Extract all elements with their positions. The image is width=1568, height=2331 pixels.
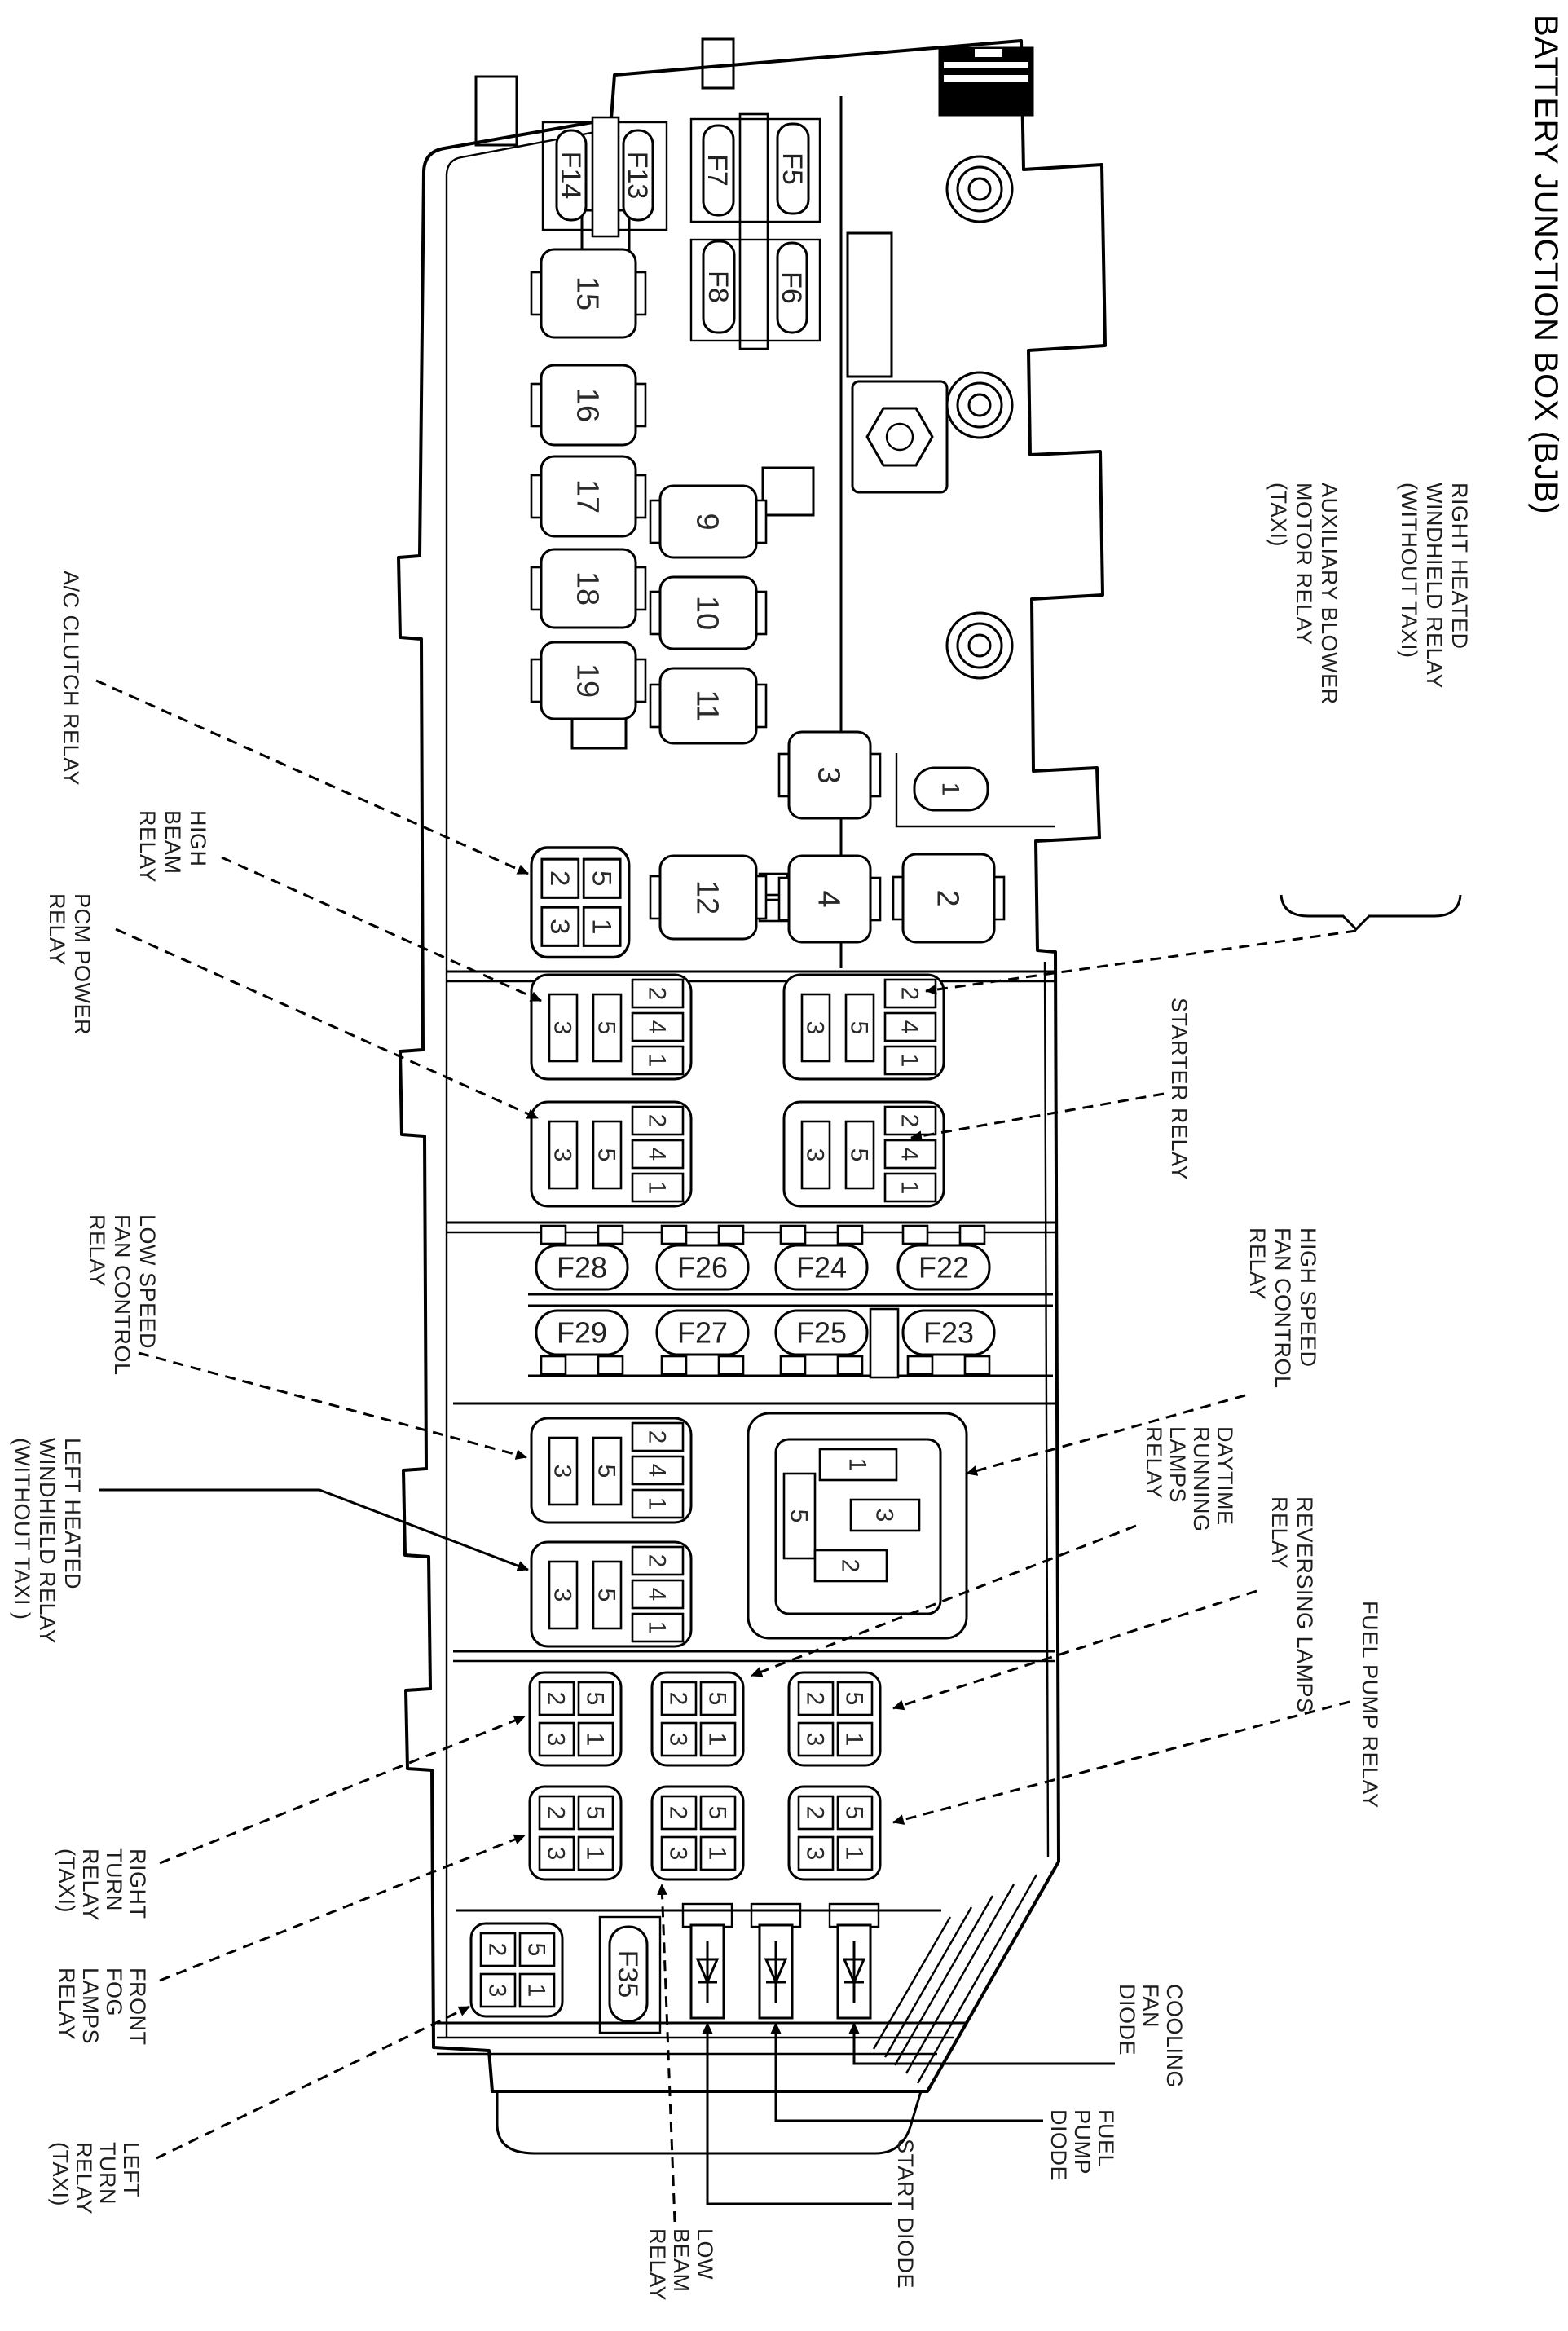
callout-text: TURN	[95, 2142, 120, 2205]
pin-label: 2	[837, 1559, 864, 1573]
relay-10: 10	[650, 577, 766, 649]
fuse-label-f27: F27	[677, 1316, 728, 1350]
callout-text: PUMP	[1070, 2109, 1095, 2175]
front-fog-lamps-relay-footprint	[530, 1787, 621, 1879]
low-speed-fan-relay-footprint	[531, 1418, 691, 1522]
relay-number: 3	[812, 766, 846, 783]
callout-text: BEAM	[669, 2228, 694, 2293]
callout-text: (TAXI)	[1266, 483, 1291, 547]
callout-text: (TAXI)	[55, 1848, 79, 1913]
callout-text: RELAY	[72, 2142, 96, 2214]
callout-low-speed-fan-relay: LOW SPEED FAN CONTROL RELAY	[85, 1214, 160, 1376]
callout-text: LAMPS	[1165, 1426, 1190, 1503]
relay-9: 9	[650, 486, 766, 557]
callout-text: STARTER RELAY	[1167, 998, 1191, 1180]
page-title-text: BATTERY JUNCTION BOX (BJB)	[1528, 15, 1564, 514]
callout-text: RIGHT	[126, 1848, 150, 1919]
relay-3: 3	[779, 732, 880, 818]
callout-text: RELAY	[1245, 1227, 1270, 1300]
callout-text: FAN CONTROL	[110, 1214, 134, 1376]
callout-text: MOTOR RELAY	[1292, 483, 1316, 646]
callout-text: (TAXI)	[48, 2142, 73, 2206]
fuse-label-f25: F25	[796, 1316, 847, 1350]
connector-block	[939, 47, 1033, 116]
callout-text: (WITHOUT TAXI)	[1397, 483, 1421, 659]
callout-text: RELAY	[645, 2228, 670, 2301]
brace-right-heated-aux	[1281, 895, 1460, 929]
fuse-label-f22: F22	[918, 1251, 969, 1284]
callout-text: RELAY	[78, 1848, 103, 1921]
callout-text: LAMPS	[78, 1967, 103, 2044]
high-beam-relay-footprint	[531, 975, 691, 1079]
relay-4: 4	[779, 856, 880, 942]
callout-text: RELAY	[1142, 1426, 1166, 1499]
bjb-outline	[399, 39, 1105, 2153]
left-heated-windshield-relay-footprint	[531, 1542, 691, 1646]
callout-left-heated-windshield-relay: LEFT HEATED WINDHIELD RELAY (WITHOUT TAX…	[10, 1438, 85, 1644]
relay-number: 11	[690, 690, 725, 721]
callout-fuel-pump-diode: FUEL PUMP DIODE	[1046, 2109, 1118, 2181]
callout-text: START DIODE	[893, 2139, 918, 2289]
pin-label: 3	[871, 1509, 898, 1522]
callout-reversing-lamps-relay: REVERSING LAMPS RELAY	[1267, 1496, 1317, 1713]
callout-text: RELAY	[135, 810, 160, 883]
callout-right-heated-windshield-relay: RIGHT HEATED WINDHIELD RELAY (WITHOUT TA…	[1397, 483, 1472, 689]
fuse-label-f28: F28	[557, 1251, 607, 1284]
callout-text: RIGHT HEATED	[1447, 483, 1472, 650]
callout-text: FUEL	[1094, 2109, 1118, 2167]
relay-number: 18	[570, 571, 605, 606]
pin-label: 5	[786, 1509, 813, 1523]
relay-1: 1	[914, 768, 988, 810]
callout-text: LEFT HEATED	[60, 1438, 85, 1589]
relay-number: 2	[931, 889, 965, 906]
fuse-label-f13: F13	[622, 152, 653, 200]
callout-text: LOW	[693, 2228, 717, 2280]
relay-17: 17	[531, 456, 645, 536]
callout-text: BEAM	[161, 810, 185, 875]
fuse-label-f6: F6	[776, 271, 807, 304]
relay-16: 16	[531, 365, 645, 445]
low-beam-relay-footprint	[652, 1787, 743, 1879]
fuse-label-f14: F14	[555, 152, 586, 200]
callout-text: RELAY	[55, 1967, 79, 2040]
fuse-label-f24: F24	[796, 1251, 847, 1284]
callout-starter-relay: STARTER RELAY	[1167, 998, 1191, 1180]
relay-number: 15	[570, 276, 605, 311]
fuse-label-f7: F7	[702, 154, 733, 187]
pin-label: 1	[844, 1458, 871, 1472]
relay-number: 4	[812, 890, 846, 907]
callout-text: DIODE	[1046, 2109, 1071, 2181]
relay-19: 19	[531, 642, 645, 719]
reversing-lamps-relay-footprint	[789, 1672, 880, 1765]
fuse-label-f5: F5	[777, 152, 808, 185]
callout-text: HIGH	[186, 810, 210, 867]
callout-left-turn-relay: LEFT TURN RELAY (TAXI)	[48, 2142, 143, 2214]
fuse-label-f26: F26	[677, 1251, 728, 1284]
callout-pcm-power-relay: PCM POWER RELAY	[45, 893, 95, 1035]
callout-text: COOLING	[1162, 1984, 1187, 2088]
starter-relay-footprint	[784, 1102, 944, 1206]
fuse-label-f8: F8	[703, 271, 733, 303]
fuse-label-f29: F29	[557, 1316, 607, 1350]
callout-text: RUNNING	[1189, 1426, 1213, 1532]
relay-number: 10	[690, 596, 725, 630]
callout-text: HIGH SPEED	[1296, 1227, 1320, 1368]
callout-text: RELAY	[85, 1214, 109, 1287]
fuel-pump-relay-footprint	[789, 1787, 880, 1879]
fuse-label-f23: F23	[923, 1316, 974, 1350]
callout-aux-blower-motor-relay: AUXILIARY BLOWER MOTOR RELAY (TAXI)	[1266, 483, 1341, 705]
relay-2: 2	[893, 854, 1004, 942]
callout-text: AUXILIARY BLOWER	[1317, 483, 1341, 705]
relay-number: 9	[690, 513, 725, 530]
callout-text: TURN	[102, 1848, 126, 1911]
callout-text: FUEL PUMP RELAY	[1358, 1601, 1382, 1809]
fuse-box-diagram: 3 5 2 4 1 2 5 3 1	[0, 0, 1568, 2331]
callout-cooling-fan-diode: COOLING FAN DIODE	[1115, 1984, 1187, 2088]
relay-number: 16	[570, 388, 605, 422]
callout-text: REVERSING LAMPS	[1293, 1496, 1317, 1713]
callout-right-turn-relay: RIGHT TURN RELAY (TAXI)	[55, 1848, 150, 1921]
relay-18: 18	[531, 549, 645, 628]
daytime-running-lamps-relay-footprint	[652, 1672, 743, 1765]
fuse-label-f35: F35	[612, 1950, 643, 1998]
callout-front-fog-lamps-relay: FRONT FOG LAMPS RELAY	[55, 1967, 150, 2045]
relay-number: 19	[570, 663, 605, 698]
callout-text: PCM POWER	[70, 893, 95, 1035]
callout-daytime-running-lamps-relay: DAYTIME RUNNING LAMPS RELAY	[1142, 1426, 1237, 1532]
callout-text: WINDHIELD RELAY	[35, 1438, 59, 1644]
callout-text: FAN	[1139, 1984, 1163, 2028]
relay-number: 1	[937, 782, 964, 796]
right-turn-relay-footprint	[530, 1672, 621, 1765]
callout-high-beam-relay: HIGH BEAM RELAY	[135, 810, 210, 883]
relay-12: 12	[650, 856, 766, 939]
callout-ac-clutch-relay: A/C CLUTCH RELAY	[59, 571, 83, 786]
left-turn-relay-footprint	[471, 1923, 562, 2016]
relay-15: 15	[531, 249, 645, 337]
page-title: BATTERY JUNCTION BOX (BJB)	[1528, 15, 1564, 514]
leader-left-turn	[156, 2007, 469, 2158]
pcm-power-relay-footprint	[531, 1102, 691, 1206]
callout-text: (WITHOUT TAXI )	[10, 1438, 34, 1620]
callout-text: RELAY	[1267, 1496, 1292, 1569]
bjb-diagram-canvas: 3 5 2 4 1 2 5 3 1	[0, 0, 1568, 2331]
callout-low-beam-relay: LOW BEAM RELAY	[645, 2228, 717, 2301]
relay-11: 11	[650, 668, 766, 743]
callout-text: FAN CONTROL	[1271, 1227, 1295, 1389]
callout-text: WINDHIELD RELAY	[1422, 483, 1447, 689]
callout-text: LEFT	[119, 2142, 143, 2197]
callout-text: FOG	[102, 1967, 126, 2016]
callout-start-diode: START DIODE	[893, 2139, 918, 2289]
callout-text: RELAY	[45, 893, 69, 966]
relay-number: 12	[690, 880, 725, 914]
ac-clutch-relay	[531, 848, 629, 958]
callout-text: FRONT	[126, 1967, 150, 2045]
callout-text: DAYTIME	[1213, 1426, 1237, 1526]
callout-text: DIODE	[1115, 1984, 1139, 2056]
callout-high-speed-fan-relay: HIGH SPEED FAN CONTROL RELAY	[1245, 1227, 1320, 1389]
right-heated-windshield-relay-footprint	[784, 975, 944, 1079]
relay-number: 17	[570, 479, 605, 513]
callout-text: A/C CLUTCH RELAY	[59, 571, 83, 786]
callout-text: LOW SPEED	[135, 1214, 160, 1349]
callout-fuel-pump-relay: FUEL PUMP RELAY	[1358, 1601, 1382, 1809]
